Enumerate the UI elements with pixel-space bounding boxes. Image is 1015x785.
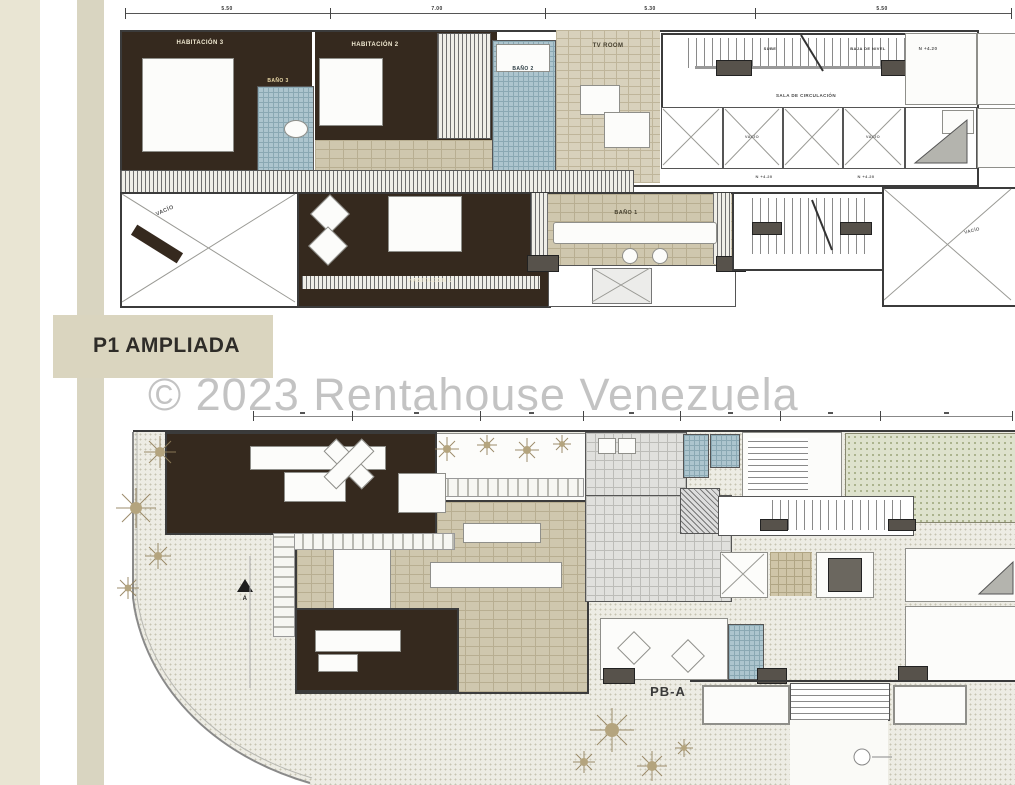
room-label-habitacion-1: HABITACIÓN 1 [408, 278, 452, 284]
stair-label-baja: BAJA DE NIVEL [850, 46, 886, 51]
void-area-right [882, 187, 1015, 307]
plan1-title: P1 AMPLIADA [93, 334, 240, 358]
room-label-bano-1: BAÑO 1 [614, 210, 637, 216]
stairs-upper-right [748, 438, 808, 490]
entrance-planter-right [893, 685, 967, 725]
store-room-shelf [942, 110, 974, 134]
stairs-lower [772, 500, 904, 530]
room-label-bano-2: BAÑO 2 [512, 66, 533, 72]
elevator-cell-1 [661, 107, 723, 169]
duct-shaft [592, 268, 652, 304]
planter-hatch [680, 488, 720, 534]
right-column-room-c [977, 108, 1015, 168]
deck-louver-horizontal [293, 533, 455, 550]
room-label-habitacion-3: HABITACIÓN 3 [176, 40, 223, 46]
bed-habitacion-1 [388, 196, 462, 252]
dim-label-smudge [828, 412, 833, 414]
dim-label-4: 5.50 [876, 6, 887, 12]
service-bath-a [683, 434, 709, 478]
dim-tick [545, 8, 546, 19]
left-margin-strip-outer [0, 0, 40, 785]
elevator-cell-2 [783, 107, 843, 169]
dryer [618, 438, 636, 454]
dim-label-smudge [944, 412, 949, 414]
dimension-line-top [125, 13, 1012, 14]
right-column-room-a [905, 33, 977, 105]
level-marker-1: N +4.20 [919, 46, 938, 51]
stair-rail-block-a [752, 222, 782, 235]
dim-tick [1012, 411, 1013, 421]
room-label-bano-3: BAÑO 3 [267, 78, 288, 84]
terrace-cushion-b [398, 473, 446, 513]
right-column-room-b [977, 33, 1015, 105]
entrance-wall [690, 680, 1015, 682]
foyer-tiles [770, 552, 812, 596]
label-sala-circulacion: SALA DE CIRCULACIÓN [776, 93, 836, 98]
room-label-habitacion-2: HABITACIÓN 2 [351, 42, 398, 48]
entrance-steps [790, 683, 890, 721]
void-label-cell-2: VACÍO [866, 134, 880, 139]
north-arrow-label: A [243, 596, 248, 602]
plan2-title: PB-A [650, 684, 686, 699]
bano1-vanity [553, 222, 717, 244]
void-label-cell-1: VACÍO [745, 134, 759, 139]
room-label-tv: TV ROOM [593, 43, 624, 49]
bano3-fixture [284, 120, 308, 138]
elevator-pb-2-cab [828, 558, 862, 592]
door-block-3 [603, 668, 635, 684]
stair-rail-block-c [760, 519, 788, 531]
bano1-louver-left [531, 193, 548, 264]
deck-strip [120, 170, 634, 193]
entrance-planter-left [702, 685, 790, 725]
service-rooms-right [905, 548, 1015, 602]
stair-landing-block-left [716, 60, 752, 76]
bed-habitacion-3 [142, 58, 234, 152]
bed-habitacion-2 [319, 58, 383, 126]
living-sofa [315, 630, 401, 652]
service-bath-b [710, 434, 740, 468]
level-marker-2: N +4.20 [756, 174, 773, 179]
dim-tick [755, 8, 756, 19]
stair-rail-block-d [888, 519, 916, 531]
dim-tick [880, 411, 881, 421]
kitchen-island [463, 523, 541, 543]
dim-tick [125, 8, 126, 19]
washer [598, 438, 616, 454]
floorplan-page: 5.50 7.00 5.30 5.50 HABITACIÓN 3 BAÑO 3 … [0, 0, 1015, 785]
pergola-slats [428, 478, 584, 497]
dim-tick [330, 8, 331, 19]
living-seat [318, 654, 358, 672]
entrance-walkway [790, 720, 888, 785]
door-block-5 [898, 666, 928, 681]
elevator-pb [720, 552, 768, 598]
door-block-1 [527, 255, 559, 272]
stair-rail-block-b [840, 222, 872, 235]
closet-habitacion-2 [437, 33, 491, 139]
dim-label-1: 5.50 [221, 6, 232, 12]
dim-tick [1011, 8, 1012, 19]
tv-sofa-2 [604, 112, 650, 148]
bano1-wc [622, 248, 638, 264]
left-margin-strip-inner [77, 0, 104, 785]
watermark: © 2023 Rentahouse Venezuela [148, 369, 799, 421]
dim-label-3: 5.30 [644, 6, 655, 12]
kitchen-counter [430, 562, 562, 588]
bano1-bidet [652, 248, 668, 264]
void-area-left [120, 192, 301, 308]
dim-label-2: 7.00 [431, 6, 442, 12]
level-marker-3: N +4.20 [858, 174, 875, 179]
deck-louver-vertical [273, 533, 295, 637]
stair-label-sube: SUBE [764, 46, 777, 51]
tv-sofa-1 [580, 85, 620, 115]
